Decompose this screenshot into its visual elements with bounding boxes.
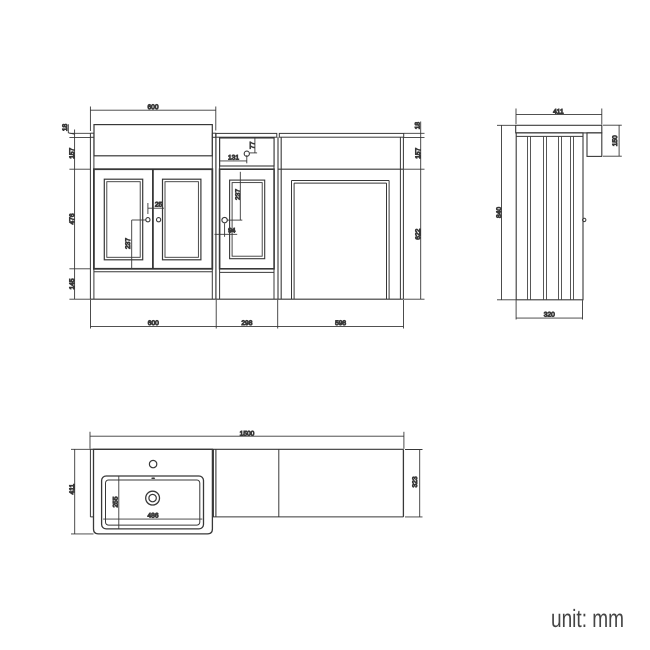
svg-text:840: 840 — [496, 207, 503, 218]
svg-text:unit: mm: unit: mm — [551, 605, 624, 633]
svg-text:255: 255 — [113, 496, 120, 507]
svg-text:157: 157 — [415, 147, 422, 158]
svg-text:77: 77 — [249, 141, 256, 149]
svg-text:598: 598 — [335, 320, 346, 327]
svg-text:1500: 1500 — [240, 430, 255, 437]
svg-text:486: 486 — [147, 513, 158, 520]
svg-text:237: 237 — [125, 238, 132, 249]
svg-text:145: 145 — [69, 278, 76, 289]
svg-text:25: 25 — [155, 202, 163, 209]
svg-text:150: 150 — [612, 135, 619, 146]
svg-text:18: 18 — [415, 122, 422, 130]
svg-text:600: 600 — [147, 104, 158, 111]
svg-text:18: 18 — [62, 124, 69, 132]
svg-text:237: 237 — [235, 189, 242, 200]
svg-text:323: 323 — [412, 476, 419, 487]
svg-text:94: 94 — [228, 228, 236, 235]
svg-text:476: 476 — [69, 213, 76, 224]
svg-text:411: 411 — [69, 484, 76, 495]
svg-text:131: 131 — [228, 155, 239, 162]
svg-text:622: 622 — [415, 228, 422, 239]
svg-text:600: 600 — [148, 320, 159, 327]
svg-text:298: 298 — [241, 320, 252, 327]
svg-text:157: 157 — [69, 147, 76, 158]
svg-text:320: 320 — [544, 311, 555, 318]
svg-text:411: 411 — [553, 109, 564, 116]
